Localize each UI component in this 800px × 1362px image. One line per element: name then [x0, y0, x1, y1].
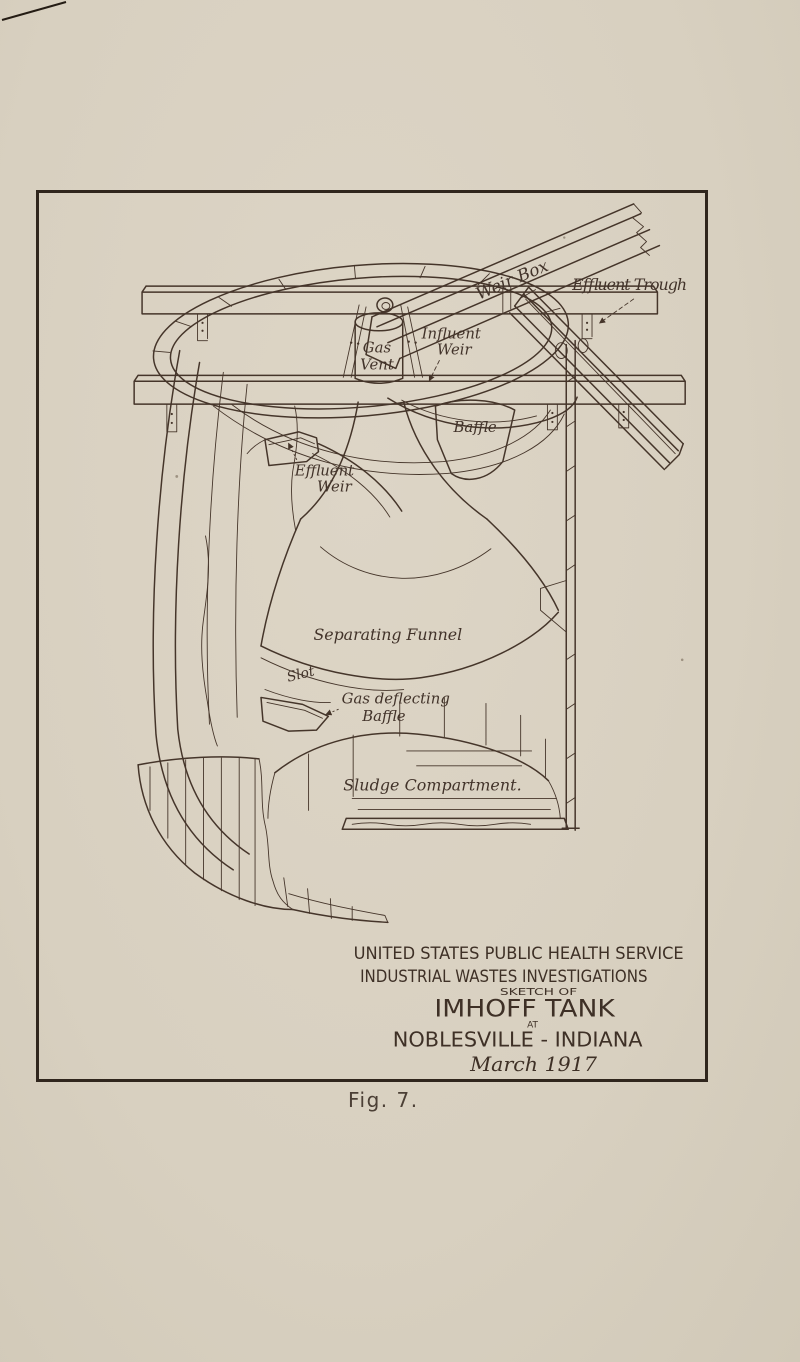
- wall-cut-edge: [202, 536, 218, 746]
- gas-deflecting-baffle-label-line1: Gas deflecting: [342, 689, 450, 707]
- title-location: NOBLESVILLE - INDIANA: [393, 1027, 644, 1051]
- gas-deflecting-baffle-label-line2: Baffle: [361, 707, 405, 725]
- paper-speck: [563, 236, 565, 238]
- separating-funnel-label: Separating Funnel: [314, 625, 463, 644]
- upper-beam: [142, 286, 657, 341]
- influent-weir: [301, 397, 578, 519]
- baffle-label: Baffle: [452, 418, 496, 436]
- weir-box-torn-end: [633, 204, 650, 256]
- gas-vent-label-line2: Vent: [360, 355, 394, 373]
- weir-box-label: Weir Box: [473, 255, 552, 304]
- figure-caption: Fig. 7.: [348, 1088, 419, 1112]
- effluent-trough-label: Effluent Trough: [571, 275, 687, 294]
- scanned-page: Weir Box Gas Vent Influent Weir: [0, 0, 800, 1362]
- paper-speck: [175, 475, 178, 478]
- title-division: INDUSTRIAL WASTES INVESTIGATIONS: [360, 966, 647, 986]
- slot-label: Slot: [285, 663, 316, 685]
- sludge-compartment: [268, 697, 560, 818]
- influent-weir-label-line2: Weir: [437, 341, 473, 359]
- gas-deflecting-baffle-leader: [326, 709, 338, 714]
- paper-speck: [681, 658, 684, 661]
- scum-baffle: [435, 400, 514, 479]
- imhoff-tank-drawing: Weir Box Gas Vent Influent Weir: [39, 193, 705, 1079]
- page-corner-artifact: [0, 0, 90, 28]
- title-date: March 1917: [469, 1053, 597, 1076]
- sludge-compartment-label: Sludge Compartment.: [343, 776, 521, 795]
- title-organization: UNITED STATES PUBLIC HEALTH SERVICE: [354, 943, 684, 963]
- figure-frame: Weir Box Gas Vent Influent Weir: [36, 190, 708, 1082]
- effluent-weir-label-line2: Weir: [317, 477, 353, 495]
- title-block: UNITED STATES PUBLIC HEALTH SERVICE INDU…: [354, 943, 684, 1076]
- effluent-trough-leader: [600, 299, 634, 323]
- gas-vent-label-line1: Gas: [363, 339, 392, 357]
- slot-line: [265, 690, 330, 703]
- influent-weir-leader: [429, 360, 439, 380]
- title-subject: IMHOFF TANK: [434, 995, 616, 1023]
- tank-floor: [342, 818, 568, 829]
